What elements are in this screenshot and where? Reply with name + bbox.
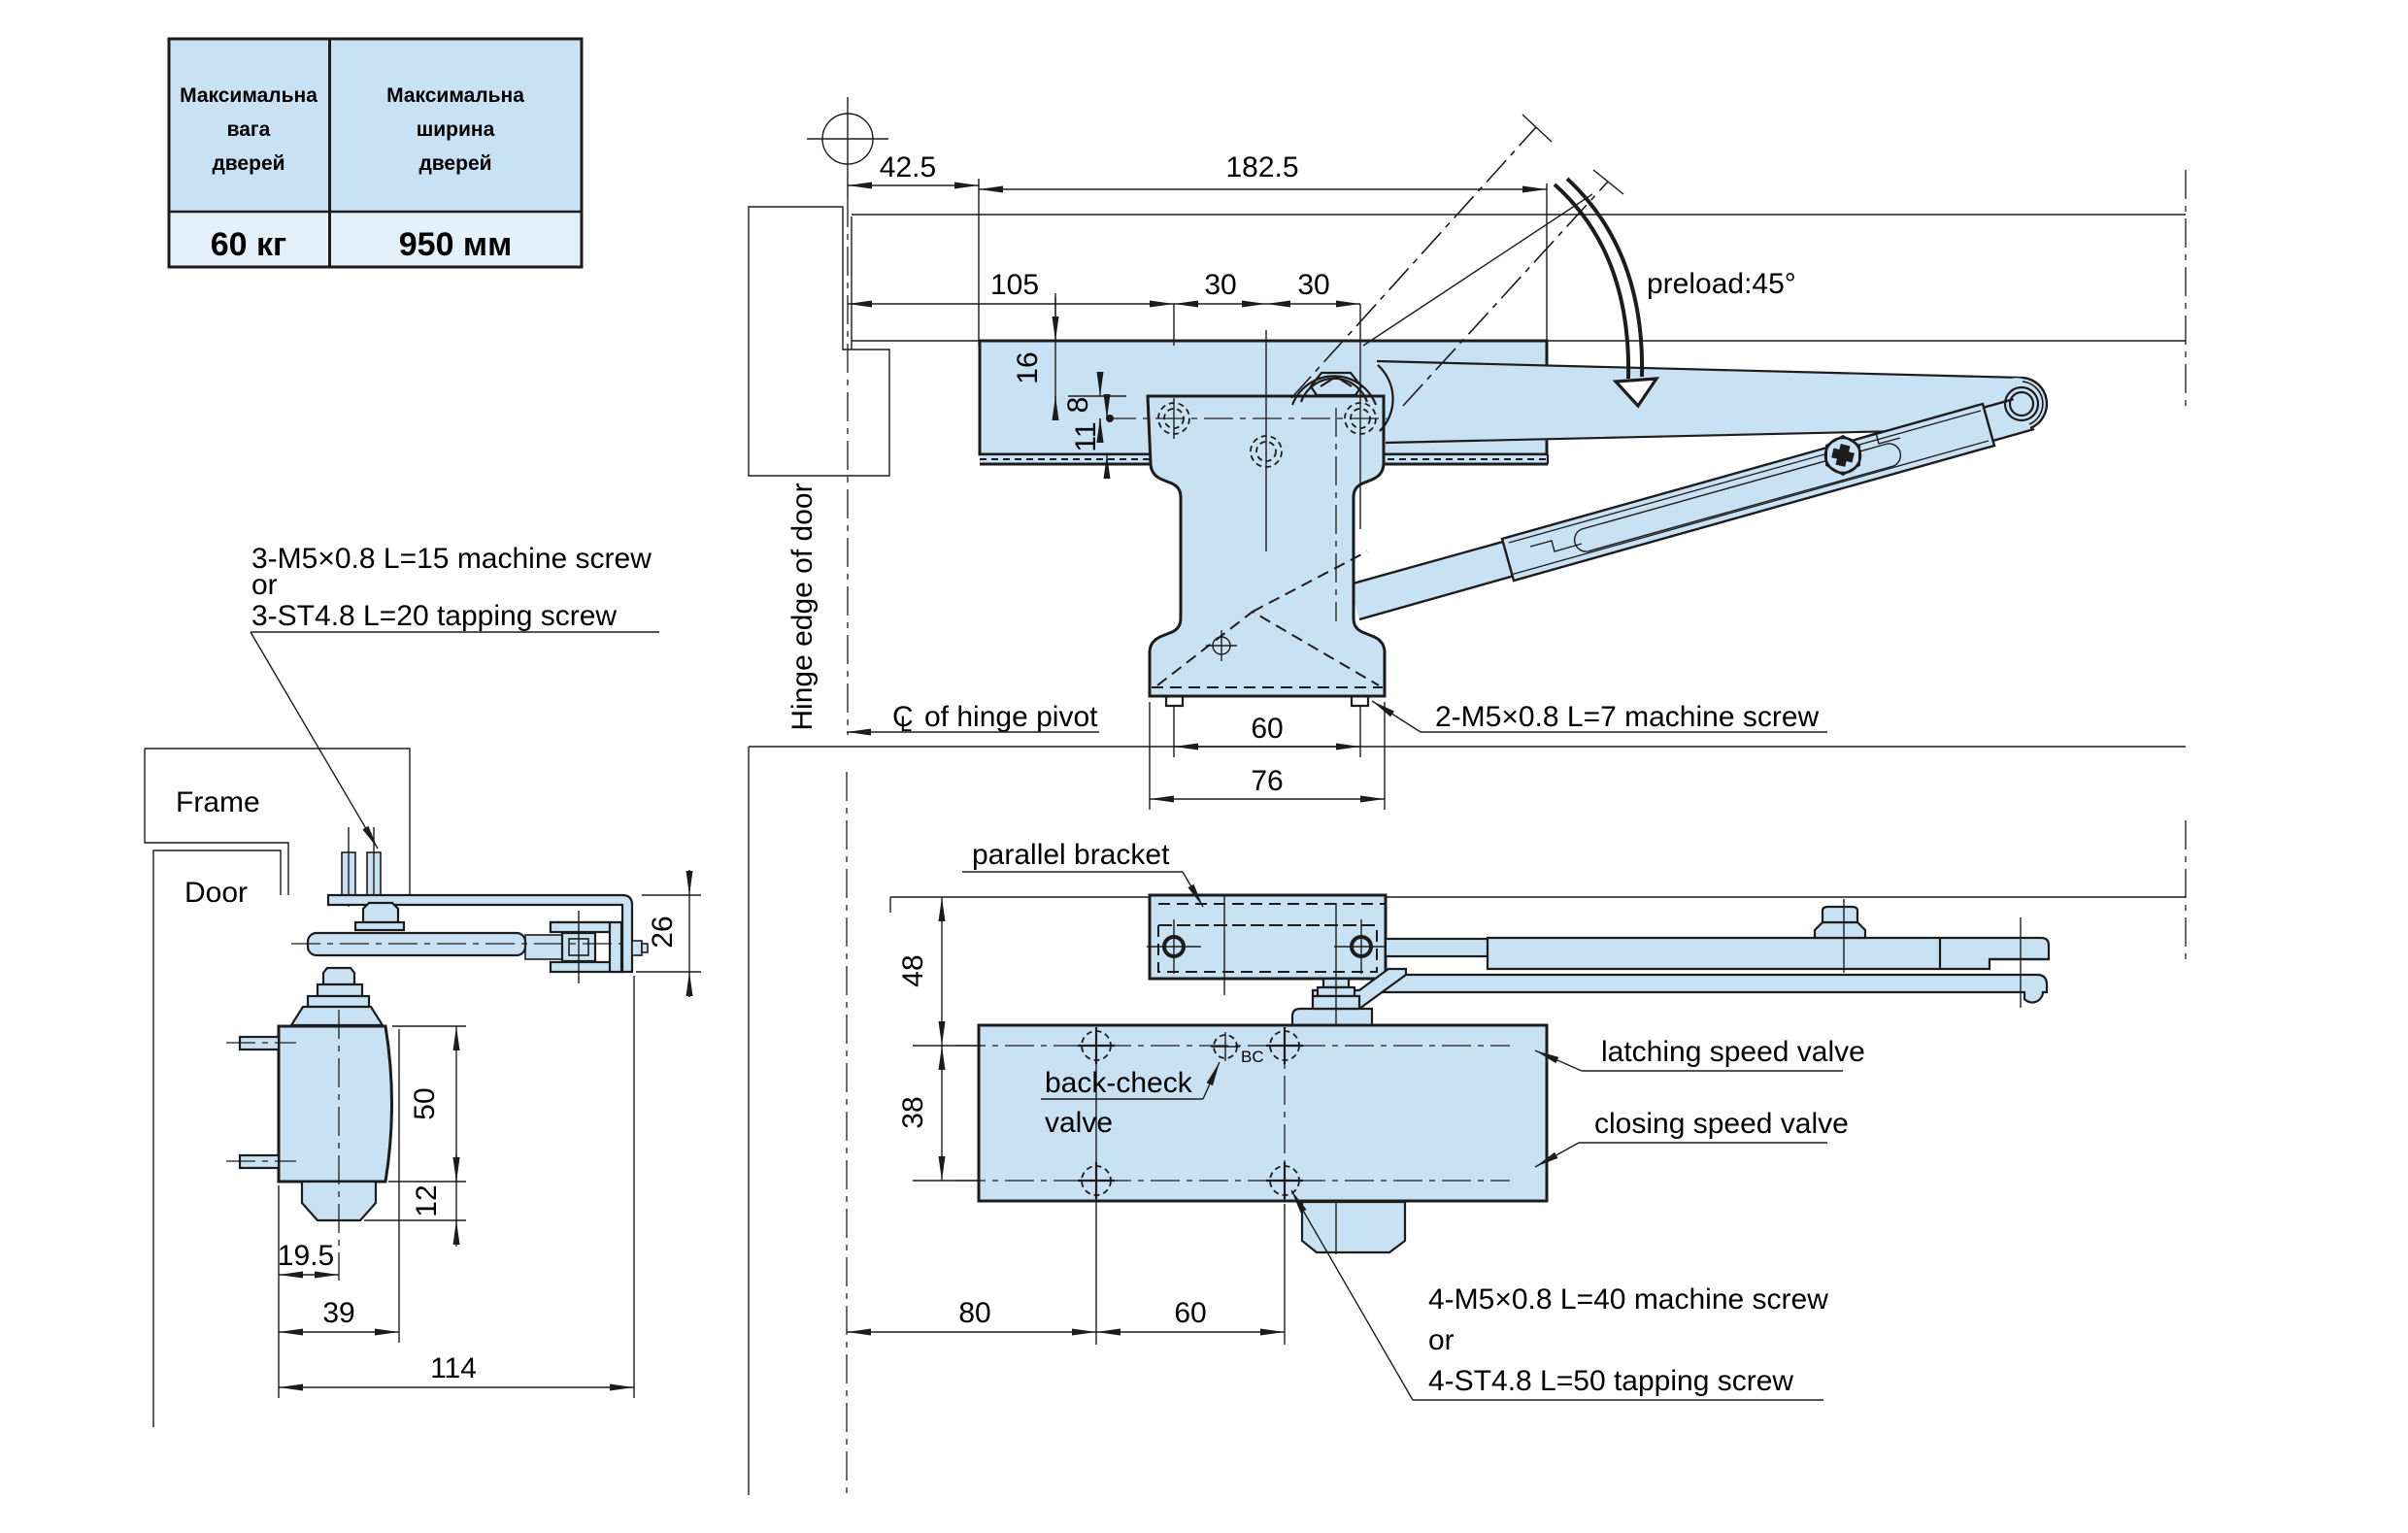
- svg-text:60 кг: 60 кг: [211, 226, 286, 263]
- svg-text:preload:45°: preload:45°: [1647, 268, 1796, 300]
- svg-text:or: or: [251, 569, 278, 601]
- svg-text:50: 50: [409, 1087, 441, 1119]
- svg-text:4-M5×0.8 L=40 machine screw: 4-M5×0.8 L=40 machine screw: [1428, 1283, 1828, 1316]
- svg-text:4-ST4.8 L=50 tapping screw: 4-ST4.8 L=50 tapping screw: [1428, 1365, 1793, 1397]
- svg-text:or: or: [1428, 1324, 1455, 1356]
- svg-text:дверей: дверей: [418, 152, 491, 175]
- svg-text:Максимальна: Максимальна: [386, 84, 524, 107]
- svg-text:Door: Door: [184, 877, 248, 909]
- svg-text:Максимальна: Максимальна: [180, 84, 318, 107]
- svg-text:16: 16: [1012, 351, 1044, 383]
- svg-text:Frame: Frame: [176, 786, 260, 818]
- svg-text:60: 60: [1251, 713, 1283, 745]
- svg-text:80: 80: [958, 1297, 990, 1329]
- svg-text:latching speed valve: latching speed valve: [1601, 1036, 1865, 1068]
- svg-text:19.5: 19.5: [278, 1240, 334, 1272]
- svg-text:48: 48: [897, 954, 929, 986]
- svg-text:closing speed valve: closing speed valve: [1594, 1108, 1849, 1140]
- svg-text:ширина: ширина: [417, 118, 495, 141]
- svg-text:3-M5×0.8 L=15 machine screw: 3-M5×0.8 L=15 machine screw: [251, 543, 652, 575]
- svg-text:26: 26: [647, 916, 679, 948]
- svg-text:12: 12: [411, 1184, 443, 1216]
- svg-text:3-ST4.8 L=20 tapping screw: 3-ST4.8 L=20 tapping screw: [251, 600, 617, 632]
- svg-text:дверей: дверей: [212, 152, 284, 175]
- svg-text:BC: BC: [1241, 1048, 1264, 1066]
- svg-text:back-check: back-check: [1045, 1067, 1193, 1099]
- svg-text:parallel bracket: parallel bracket: [972, 839, 1170, 871]
- svg-text:30: 30: [1204, 269, 1236, 301]
- svg-text:30: 30: [1297, 269, 1329, 301]
- svg-text:42.5: 42.5: [880, 151, 936, 183]
- svg-text:114: 114: [430, 1352, 477, 1384]
- svg-text:105: 105: [990, 269, 1039, 301]
- svg-text:of hinge pivot: of hinge pivot: [924, 701, 1098, 733]
- svg-text:76: 76: [1251, 765, 1283, 797]
- svg-text:182.5: 182.5: [1225, 151, 1298, 183]
- svg-text:11: 11: [1070, 421, 1102, 451]
- svg-text:60: 60: [1174, 1297, 1206, 1329]
- svg-text:2-M5×0.8 L=7 machine screw: 2-M5×0.8 L=7 machine screw: [1435, 701, 1820, 733]
- svg-text:valve: valve: [1045, 1107, 1113, 1139]
- svg-text:8: 8: [1062, 397, 1094, 414]
- svg-text:вага: вага: [227, 118, 271, 141]
- svg-text:38: 38: [897, 1096, 929, 1128]
- svg-text:39: 39: [322, 1297, 354, 1329]
- svg-text:Hinge edge of door: Hinge edge of door: [786, 483, 819, 730]
- svg-text:950 мм: 950 мм: [399, 226, 512, 263]
